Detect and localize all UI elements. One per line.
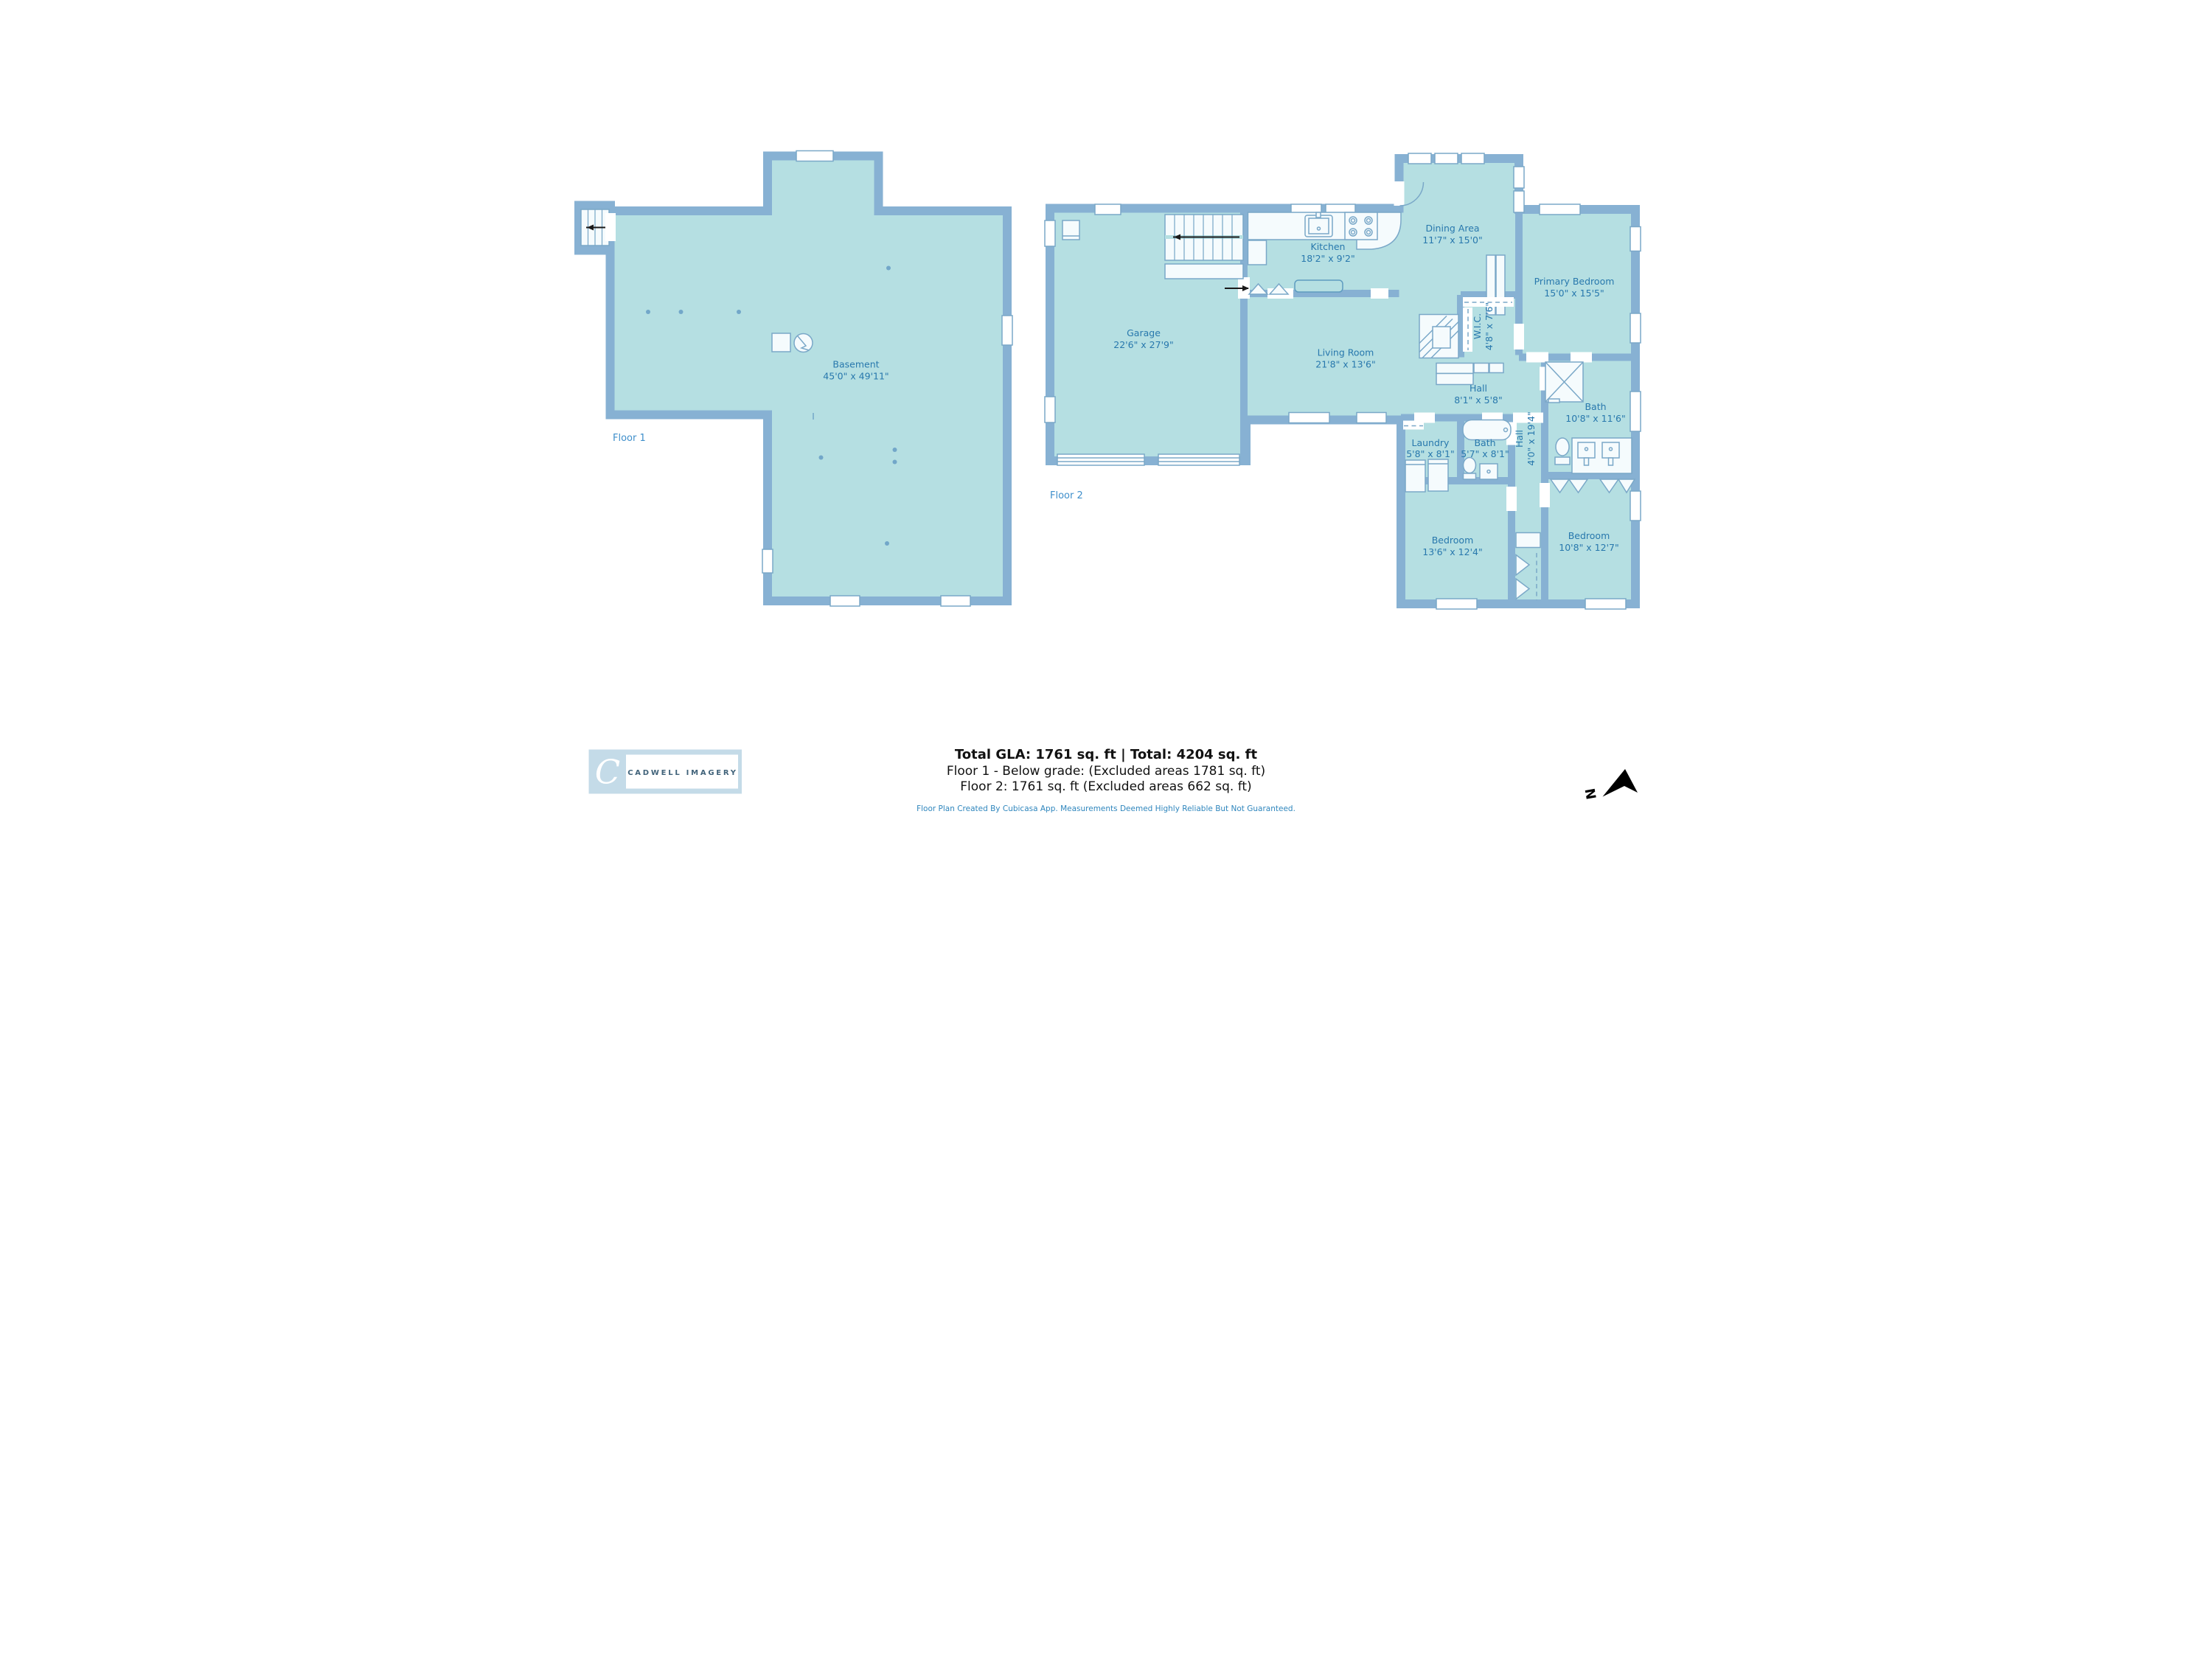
floor1-label: Floor 1 [613,433,646,444]
room-dims-hall-upper: 8'1" x 5'8" [1454,394,1503,406]
window-icon [1461,153,1484,164]
window-icon [762,549,773,573]
window-icon [1630,491,1641,521]
basement-outline [611,156,1008,602]
room-dims-dining: 11'7" x 15'0" [1422,234,1482,246]
room-label-bath-large: Bath [1585,401,1606,412]
window-icon [1630,392,1641,431]
room-dims-garage: 22'6" x 27'9" [1113,339,1173,350]
window-icon [1045,220,1055,246]
room-label-hall-upper: Hall [1470,383,1487,394]
room-label-primary: Primary Bedroom [1534,276,1615,287]
footer-summary: Total GLA: 1761 sq. ft | Total: 4204 sq.… [917,747,1295,813]
room-label-bedroom-left: Bedroom [1432,535,1474,546]
window-icon [1045,397,1055,422]
room-dims-basement: 45'0" x 49'11" [823,371,888,382]
door-gap-kitchen2 [1371,288,1388,299]
room-dims-wic: 4'8" x 7'6" [1484,302,1495,351]
floor-plan-canvas: Basement 45'0" x 49'11" Floor 1 [553,0,1659,829]
double-vanity-icon [1572,438,1632,473]
window-icon [1514,191,1524,212]
cadwell-imagery-logo: C CADWELL IMAGERY [589,750,742,794]
floor2-label: Floor 2 [1050,490,1083,501]
floor2-plan: Garage 22'6" x 27'9" Kitchen 18'2" x 9'2… [1045,153,1641,609]
room-label-basement: Basement [832,359,879,370]
room-dims-hall-long: 4'0" x 19'4" [1526,411,1537,465]
window-icon [1095,204,1121,215]
stairs-icon [581,209,609,246]
door-gap-bedroom-left [1506,487,1517,511]
stove-icon [1345,212,1377,240]
sink-icon [1305,212,1332,237]
toilet-icon [1555,438,1570,465]
north-label: N [1583,787,1600,800]
window-icon [1289,413,1329,423]
room-dims-bath-small: 5'7" x 8'1" [1461,448,1509,459]
kitchen-island [1295,280,1343,292]
window-icon [1514,167,1524,188]
door-gap-primary [1526,352,1548,363]
room-dims-living: 21'8" x 13'6" [1315,359,1375,370]
window-icon [1436,599,1477,609]
north-arrow-icon: N [1583,769,1638,801]
floor-plan-page: Basement 45'0" x 49'11" Floor 1 [553,0,1659,829]
room-label-bath-small: Bath [1474,437,1495,448]
window-icon [1002,316,1012,345]
room-dims-primary: 15'0" x 15'5" [1544,288,1604,299]
shower-icon [1545,362,1583,403]
logo-monogram: C [595,753,620,792]
room-label-laundry: Laundry [1412,437,1450,448]
furnace-icon [772,333,790,352]
floor1-basement: Basement 45'0" x 49'11" Floor 1 [579,151,1012,607]
fridge-icon [1248,240,1267,265]
window-icon [1630,313,1641,343]
room-dims-kitchen: 18'2" x 9'2" [1301,253,1354,264]
window-icon [941,596,970,606]
room-label-dining: Dining Area [1425,223,1479,234]
logo-name: CADWELL IMAGERY [627,769,738,777]
stairs-icon [1165,215,1243,279]
sink-icon [1480,464,1498,479]
window-icon [1585,599,1626,609]
water-heater-icon [794,334,813,352]
disclaimer-text: Floor Plan Created By Cubicasa App. Meas… [917,804,1295,813]
window-icon [1540,204,1580,215]
room-label-hall-long: Hall [1514,430,1525,448]
window-icon [1357,413,1386,423]
window-icon [1630,227,1641,251]
toilet-icon [1464,458,1476,480]
room-label-wic: W.I.C. [1472,313,1483,339]
door-gap-primary2 [1571,352,1592,363]
room-label-living: Living Room [1318,347,1374,358]
total-gla-text: Total GLA: 1761 sq. ft | Total: 4204 sq.… [955,747,1258,762]
door-gap-dining [1394,181,1405,206]
room-label-bedroom-right: Bedroom [1568,530,1610,541]
floor1-summary-text: Floor 1 - Below grade: (Excluded areas 1… [947,764,1265,779]
room-dims-bedroom-right: 10'8" x 12'7" [1559,542,1618,553]
door-gap-wic [1514,324,1524,349]
room-label-kitchen: Kitchen [1311,241,1346,252]
room-label-garage: Garage [1127,327,1161,338]
room-dims-laundry: 5'8" x 8'1" [1406,448,1455,459]
window-icon [830,596,860,606]
basement-door-gap [605,213,616,241]
window-icon [796,151,833,161]
room-dims-bath-large: 10'8" x 11'6" [1565,413,1625,424]
electrical-panel-icon [1062,220,1079,240]
floor2-summary-text: Floor 2: 1761 sq. ft (Excluded areas 662… [960,779,1251,794]
window-icon [1435,153,1458,164]
room-dims-bedroom-left: 13'6" x 12'4" [1422,546,1482,557]
door-gap-bedroom-right [1540,483,1550,507]
fireplace-icon [1419,315,1458,358]
window-icon [1408,153,1431,164]
